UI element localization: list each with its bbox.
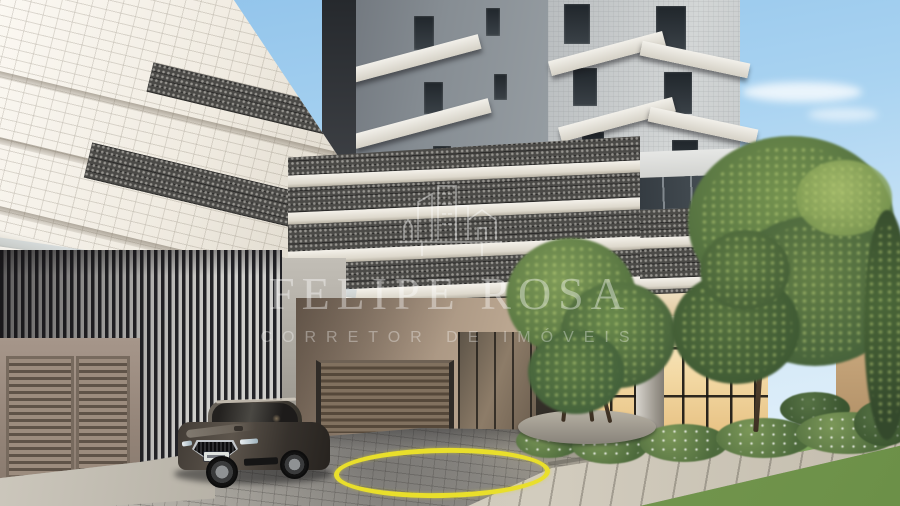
cloud bbox=[742, 82, 862, 102]
slatted-gate bbox=[316, 360, 454, 433]
balcony-slab bbox=[352, 98, 491, 149]
cloud bbox=[808, 108, 878, 121]
tree-canopy bbox=[700, 230, 790, 310]
car bbox=[178, 400, 330, 488]
garage-wall bbox=[0, 338, 140, 480]
window bbox=[414, 16, 434, 50]
balcony-slab bbox=[342, 34, 481, 85]
tree-canopy bbox=[528, 330, 624, 414]
window bbox=[573, 68, 597, 106]
wheel-front bbox=[206, 456, 238, 488]
window bbox=[494, 74, 507, 100]
garage-door-left bbox=[6, 356, 74, 478]
window bbox=[424, 82, 443, 114]
balcony-slab bbox=[640, 41, 751, 79]
architectural-render: FELIPE ROSA CORRETOR DE IMÓVEIS bbox=[0, 0, 900, 506]
window bbox=[486, 8, 500, 36]
garage-door-right bbox=[76, 356, 130, 474]
round-planter bbox=[518, 410, 656, 444]
side-mirror bbox=[234, 426, 243, 431]
glass-vestibule bbox=[458, 332, 536, 432]
window bbox=[564, 4, 590, 44]
wheel-rear bbox=[280, 450, 309, 479]
